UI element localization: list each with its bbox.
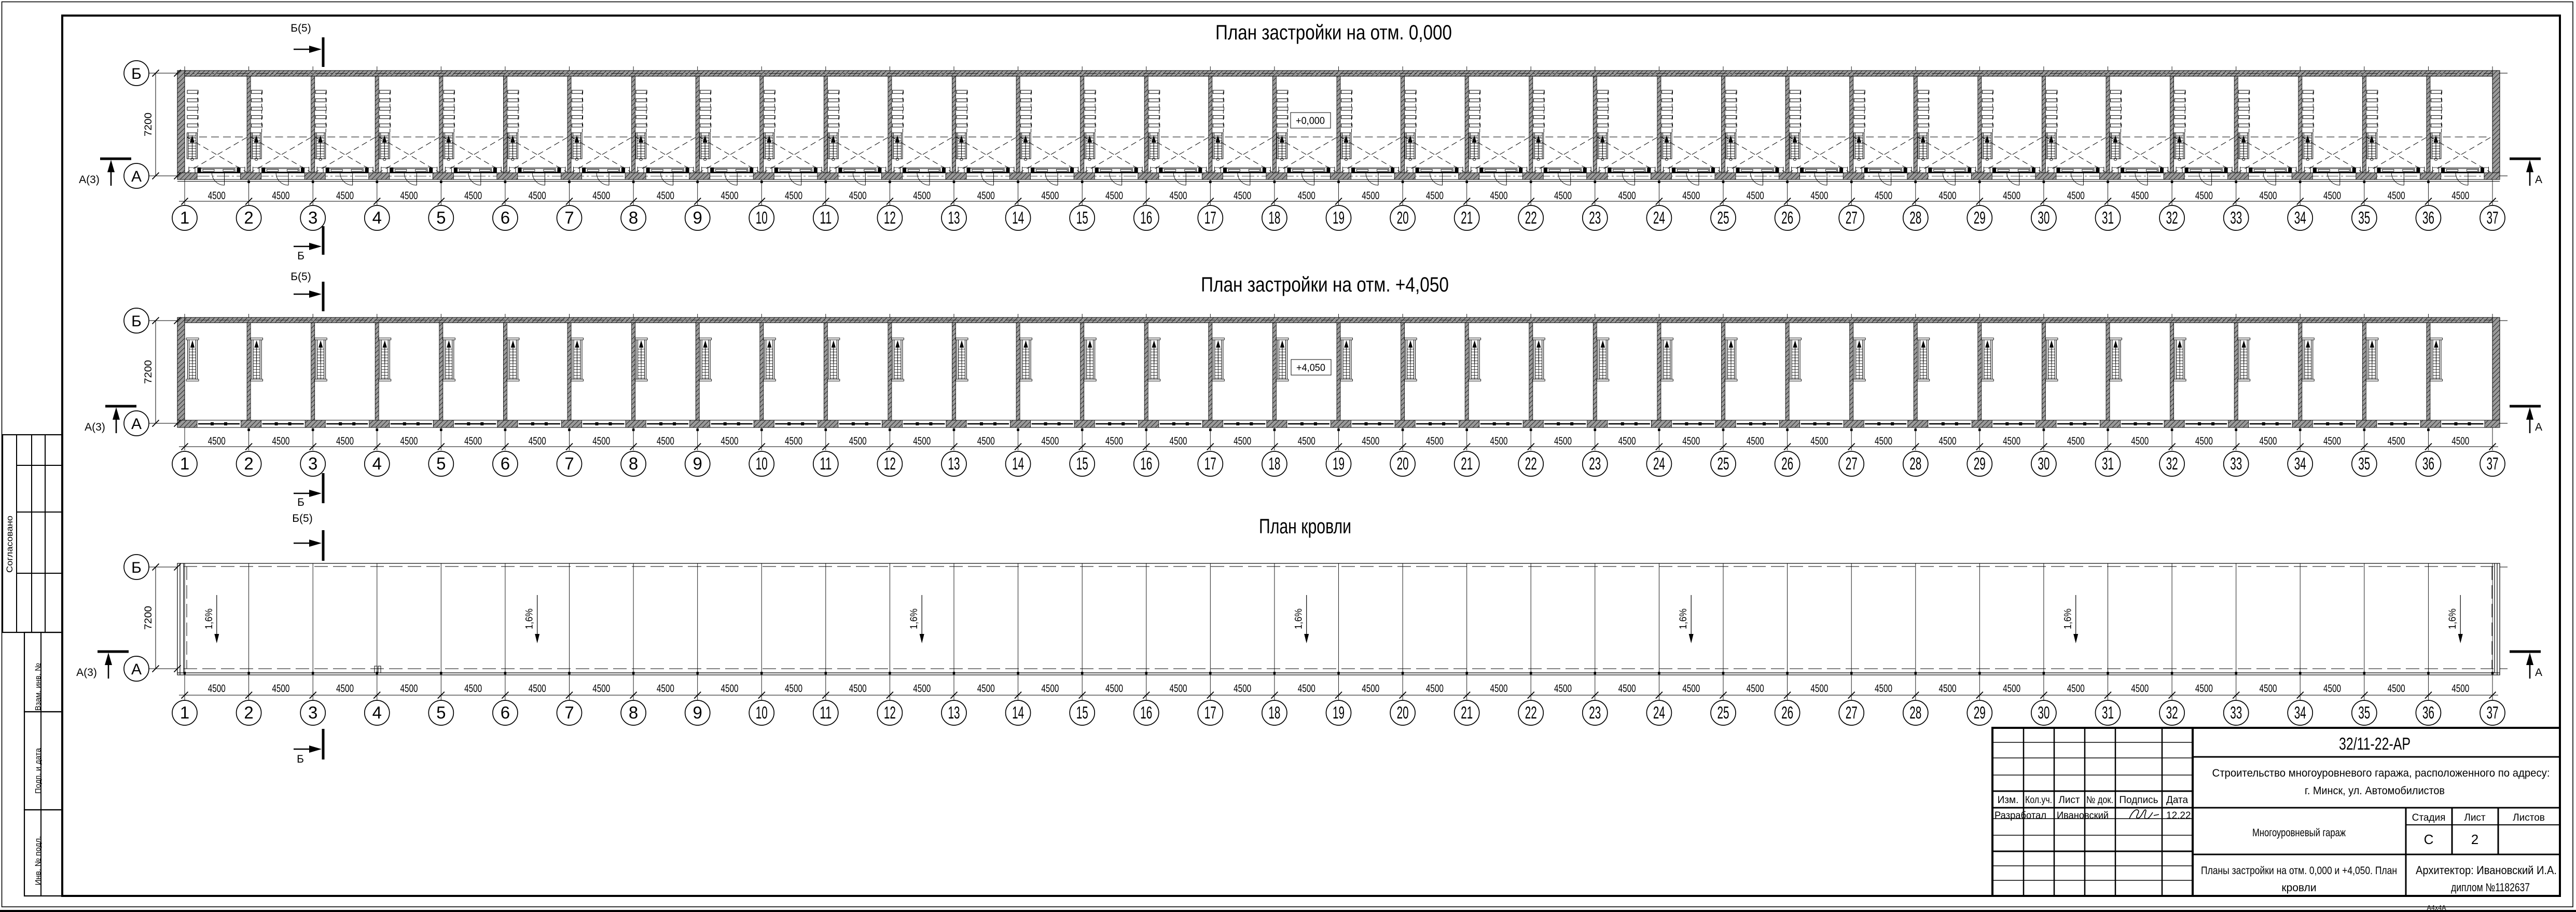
svg-text:4500: 4500 [208, 683, 226, 695]
svg-text:12: 12 [884, 703, 896, 722]
svg-text:4500: 4500 [529, 683, 546, 695]
svg-text:13: 13 [948, 208, 960, 227]
svg-text:Б: Б [131, 65, 142, 82]
svg-text:6: 6 [501, 208, 510, 227]
svg-text:9: 9 [693, 703, 702, 722]
svg-text:37: 37 [2487, 703, 2499, 722]
svg-text:г. Минск, ул. Автомобилистов: г. Минск, ул. Автомобилистов [2305, 785, 2445, 797]
svg-text:4500: 4500 [849, 435, 867, 447]
svg-text:Б(5): Б(5) [290, 271, 311, 283]
svg-text:1,6%: 1,6% [1678, 609, 1689, 629]
svg-text:7200: 7200 [143, 360, 154, 384]
svg-text:4500: 4500 [529, 190, 546, 202]
svg-text:26: 26 [1781, 703, 1793, 722]
svg-text:6: 6 [501, 454, 510, 473]
svg-text:4500: 4500 [1810, 190, 1828, 202]
svg-text:13: 13 [948, 703, 960, 722]
svg-text:23: 23 [1589, 454, 1601, 473]
svg-text:4500: 4500 [1618, 435, 1636, 447]
svg-text:Подп. и дата: Подп. и дата [34, 748, 43, 794]
svg-text:12: 12 [884, 454, 896, 473]
svg-text:4500: 4500 [1041, 683, 1059, 695]
svg-text:33: 33 [2230, 703, 2242, 722]
svg-text:4500: 4500 [2003, 435, 2020, 447]
svg-text:4500: 4500 [657, 683, 674, 695]
svg-text:4500: 4500 [1682, 683, 1700, 695]
svg-text:С: С [2424, 832, 2434, 847]
svg-text:18: 18 [1268, 208, 1280, 227]
svg-text:4500: 4500 [1041, 190, 1059, 202]
svg-text:+4,050: +4,050 [1296, 363, 1325, 374]
svg-text:Б: Б [297, 753, 304, 765]
svg-text:4500: 4500 [1554, 683, 1572, 695]
svg-text:4500: 4500 [721, 190, 739, 202]
svg-text:16: 16 [1140, 703, 1152, 722]
svg-text:4500: 4500 [849, 683, 867, 695]
svg-text:31: 31 [2102, 208, 2114, 227]
svg-text:4500: 4500 [977, 683, 995, 695]
svg-text:1,6%: 1,6% [204, 609, 215, 629]
svg-text:Дата: Дата [2166, 795, 2189, 806]
svg-text:4500: 4500 [336, 190, 354, 202]
svg-text:4500: 4500 [2388, 190, 2405, 202]
svg-text:4500: 4500 [1426, 683, 1444, 695]
svg-text:7: 7 [564, 454, 574, 473]
svg-text:Листов: Листов [2513, 812, 2545, 823]
svg-text:Б(5): Б(5) [292, 513, 312, 524]
svg-text:2: 2 [2471, 832, 2478, 847]
svg-text:12.22: 12.22 [2166, 810, 2191, 821]
svg-text:4500: 4500 [1298, 683, 1315, 695]
svg-text:Стадия: Стадия [2412, 812, 2446, 823]
svg-text:4500: 4500 [208, 435, 226, 447]
svg-text:4500: 4500 [1875, 190, 1892, 202]
svg-text:4500: 4500 [2452, 435, 2469, 447]
svg-text:25: 25 [1718, 454, 1729, 473]
svg-text:4500: 4500 [2323, 435, 2341, 447]
svg-text:Б: Б [297, 496, 304, 508]
svg-text:4500: 4500 [1170, 190, 1187, 202]
svg-text:22: 22 [1525, 208, 1537, 227]
svg-text:4500: 4500 [1105, 683, 1123, 695]
svg-text:18: 18 [1268, 454, 1280, 473]
svg-text:7200: 7200 [143, 606, 154, 630]
svg-text:4500: 4500 [913, 190, 931, 202]
svg-text:4500: 4500 [1362, 683, 1379, 695]
svg-text:4500: 4500 [592, 435, 610, 447]
svg-text:4500: 4500 [1810, 435, 1828, 447]
svg-text:27: 27 [1846, 454, 1858, 473]
svg-text:4500: 4500 [1105, 435, 1123, 447]
svg-text:28: 28 [1909, 208, 1921, 227]
svg-text:А: А [131, 168, 142, 185]
svg-text:4500: 4500 [2003, 190, 2020, 202]
svg-text:4500: 4500 [592, 683, 610, 695]
svg-text:1,6%: 1,6% [2063, 609, 2074, 629]
svg-text:11: 11 [820, 454, 832, 473]
svg-text:4500: 4500 [2003, 683, 2020, 695]
svg-text:4500: 4500 [785, 683, 802, 695]
svg-text:14: 14 [1012, 208, 1024, 227]
svg-text:А(3): А(3) [85, 421, 105, 433]
svg-text:А: А [2535, 667, 2542, 679]
svg-text:7: 7 [564, 208, 574, 227]
svg-text:4500: 4500 [1875, 683, 1892, 695]
svg-text:4500: 4500 [1554, 190, 1572, 202]
svg-text:23: 23 [1589, 208, 1601, 227]
svg-text:13: 13 [948, 454, 960, 473]
svg-text:А: А [131, 416, 142, 433]
svg-text:19: 19 [1333, 703, 1345, 722]
svg-text:План застройки на отм. 0,000: План застройки на отм. 0,000 [1215, 21, 1452, 44]
svg-text:20: 20 [1397, 208, 1409, 227]
svg-text:4: 4 [372, 703, 382, 722]
svg-text:4500: 4500 [2260, 435, 2277, 447]
svg-text:4500: 4500 [2323, 683, 2341, 695]
svg-text:4500: 4500 [1682, 190, 1700, 202]
svg-text:Строительство многоуровневого: Строительство многоуровневого гаража, ра… [2212, 767, 2550, 779]
svg-text:26: 26 [1781, 454, 1793, 473]
svg-text:+0,000: +0,000 [1296, 116, 1325, 127]
svg-text:30: 30 [2038, 703, 2049, 722]
svg-text:4500: 4500 [2067, 683, 2085, 695]
svg-text:19: 19 [1333, 454, 1345, 473]
svg-text:36: 36 [2422, 208, 2434, 227]
svg-text:4500: 4500 [1426, 435, 1444, 447]
svg-text:4500: 4500 [1170, 683, 1187, 695]
svg-text:4500: 4500 [1298, 190, 1315, 202]
svg-text:18: 18 [1268, 703, 1280, 722]
svg-text:5: 5 [436, 703, 446, 722]
svg-text:1,6%: 1,6% [524, 609, 535, 629]
svg-text:22: 22 [1525, 703, 1537, 722]
svg-text:План застройки на отм. +4,050: План застройки на отм. +4,050 [1201, 273, 1449, 296]
svg-text:4500: 4500 [2131, 190, 2149, 202]
svg-text:Кол.уч.: Кол.уч. [2025, 795, 2052, 806]
svg-text:4500: 4500 [785, 435, 802, 447]
svg-text:31: 31 [2102, 454, 2114, 473]
svg-text:4500: 4500 [1939, 190, 1957, 202]
svg-text:4500: 4500 [2195, 190, 2213, 202]
svg-text:15: 15 [1076, 208, 1088, 227]
svg-text:15: 15 [1076, 703, 1088, 722]
svg-text:31: 31 [2102, 703, 2114, 722]
svg-text:4500: 4500 [1234, 190, 1251, 202]
svg-text:4500: 4500 [2260, 190, 2277, 202]
svg-text:3: 3 [308, 454, 317, 473]
svg-text:А: А [131, 661, 142, 678]
svg-text:4500: 4500 [2388, 435, 2405, 447]
svg-text:Разработал: Разработал [1995, 810, 2046, 821]
svg-text:Взам. инв. №: Взам. инв. № [34, 663, 43, 711]
svg-text:4500: 4500 [721, 435, 739, 447]
svg-text:37: 37 [2487, 208, 2499, 227]
svg-text:Инв. № подл.: Инв. № подл. [34, 836, 43, 886]
svg-text:5: 5 [436, 454, 446, 473]
svg-text:4500: 4500 [2195, 683, 2213, 695]
svg-text:Б(5): Б(5) [290, 22, 311, 34]
svg-text:Изм.: Изм. [1998, 795, 2019, 806]
svg-text:24: 24 [1653, 454, 1665, 473]
svg-text:4500: 4500 [2067, 435, 2085, 447]
svg-text:диплом №1182637: диплом №1182637 [2451, 881, 2530, 894]
svg-text:4500: 4500 [2452, 190, 2469, 202]
svg-text:4500: 4500 [2131, 683, 2149, 695]
svg-text:3: 3 [308, 703, 317, 722]
svg-text:4500: 4500 [1875, 435, 1892, 447]
svg-text:35: 35 [2358, 454, 2370, 473]
svg-text:24: 24 [1653, 208, 1665, 227]
svg-text:19: 19 [1333, 208, 1345, 227]
svg-text:29: 29 [1974, 454, 1986, 473]
svg-text:37: 37 [2487, 454, 2499, 473]
svg-text:Лист: Лист [2464, 812, 2486, 823]
svg-text:14: 14 [1012, 703, 1024, 722]
svg-text:21: 21 [1461, 454, 1473, 473]
svg-text:9: 9 [693, 454, 702, 473]
svg-text:5: 5 [436, 208, 446, 227]
svg-text:34: 34 [2294, 208, 2306, 227]
svg-text:21: 21 [1461, 703, 1473, 722]
svg-text:1,6%: 1,6% [1294, 609, 1305, 629]
svg-text:4500: 4500 [208, 190, 226, 202]
svg-text:4500: 4500 [2452, 683, 2469, 695]
svg-text:4500: 4500 [2260, 683, 2277, 695]
svg-text:3: 3 [308, 208, 317, 227]
svg-text:11: 11 [820, 208, 832, 227]
svg-text:20: 20 [1397, 703, 1409, 722]
svg-text:4500: 4500 [1234, 435, 1251, 447]
svg-text:4500: 4500 [1490, 683, 1508, 695]
svg-text:4500: 4500 [849, 190, 867, 202]
svg-text:4500: 4500 [336, 683, 354, 695]
svg-text:17: 17 [1204, 703, 1216, 722]
svg-text:4500: 4500 [400, 190, 418, 202]
svg-text:36: 36 [2422, 454, 2434, 473]
svg-text:7200: 7200 [143, 113, 154, 136]
svg-text:4500: 4500 [1747, 435, 1764, 447]
svg-text:1,6%: 1,6% [909, 609, 920, 629]
svg-text:14: 14 [1012, 454, 1024, 473]
svg-text:4500: 4500 [464, 435, 482, 447]
svg-text:4500: 4500 [1298, 435, 1315, 447]
svg-text:11: 11 [820, 703, 832, 722]
svg-text:План кровли: План кровли [1259, 515, 1351, 538]
svg-text:24: 24 [1653, 703, 1665, 722]
svg-text:28: 28 [1909, 454, 1921, 473]
svg-text:10: 10 [756, 454, 768, 473]
svg-text:8: 8 [629, 703, 638, 722]
svg-text:26: 26 [1781, 208, 1793, 227]
svg-text:17: 17 [1204, 454, 1216, 473]
svg-text:4500: 4500 [1490, 435, 1508, 447]
svg-text:33: 33 [2230, 454, 2242, 473]
svg-text:А4х4А: А4х4А [2427, 904, 2446, 911]
svg-text:Подпись: Подпись [2119, 795, 2158, 806]
svg-text:9: 9 [693, 208, 702, 227]
svg-text:32/11-22-АР: 32/11-22-АР [2339, 734, 2411, 753]
svg-text:4500: 4500 [592, 190, 610, 202]
svg-text:22: 22 [1525, 454, 1537, 473]
svg-text:4500: 4500 [2195, 435, 2213, 447]
svg-text:4500: 4500 [464, 683, 482, 695]
svg-text:4500: 4500 [977, 190, 995, 202]
svg-text:4: 4 [372, 454, 382, 473]
svg-text:25: 25 [1718, 703, 1729, 722]
svg-text:4500: 4500 [977, 435, 995, 447]
svg-text:4500: 4500 [1618, 190, 1636, 202]
svg-text:35: 35 [2358, 703, 2370, 722]
svg-text:Ивановский: Ивановский [2057, 810, 2109, 821]
svg-text:4500: 4500 [529, 435, 546, 447]
svg-text:4: 4 [372, 208, 382, 227]
svg-text:15: 15 [1076, 454, 1088, 473]
svg-text:32: 32 [2166, 208, 2178, 227]
svg-text:4500: 4500 [721, 683, 739, 695]
svg-text:10: 10 [756, 703, 768, 722]
svg-text:1: 1 [180, 454, 189, 473]
svg-text:Б: Б [131, 559, 142, 576]
svg-text:Планы застройки на отм. 0,000: Планы застройки на отм. 0,000 и +4,050. … [2201, 865, 2397, 877]
svg-text:32: 32 [2166, 703, 2178, 722]
svg-text:4500: 4500 [1747, 683, 1764, 695]
svg-text:8: 8 [629, 454, 638, 473]
svg-text:17: 17 [1204, 208, 1216, 227]
svg-text:Лист: Лист [2058, 795, 2080, 806]
svg-text:29: 29 [1974, 703, 1986, 722]
svg-text:10: 10 [756, 208, 768, 227]
svg-text:29: 29 [1974, 208, 1986, 227]
svg-text:4500: 4500 [1554, 435, 1572, 447]
svg-text:4500: 4500 [336, 435, 354, 447]
svg-text:30: 30 [2038, 454, 2049, 473]
svg-text:33: 33 [2230, 208, 2242, 227]
svg-text:25: 25 [1718, 208, 1729, 227]
svg-text:4500: 4500 [1618, 683, 1636, 695]
svg-text:4500: 4500 [272, 683, 289, 695]
svg-text:2: 2 [244, 703, 253, 722]
svg-text:4500: 4500 [1939, 683, 1957, 695]
svg-text:6: 6 [501, 703, 510, 722]
svg-text:4500: 4500 [2323, 190, 2341, 202]
svg-text:А: А [2535, 174, 2542, 186]
svg-text:4500: 4500 [400, 683, 418, 695]
svg-text:8: 8 [629, 208, 638, 227]
svg-text:12: 12 [884, 208, 896, 227]
svg-text:4500: 4500 [1105, 190, 1123, 202]
svg-text:4500: 4500 [1490, 190, 1508, 202]
svg-text:4500: 4500 [272, 190, 289, 202]
svg-text:А: А [2535, 421, 2542, 433]
svg-text:27: 27 [1846, 208, 1858, 227]
svg-text:16: 16 [1140, 208, 1152, 227]
svg-text:2: 2 [244, 208, 253, 227]
svg-text:4500: 4500 [2131, 435, 2149, 447]
svg-text:4500: 4500 [657, 190, 674, 202]
svg-text:4500: 4500 [272, 435, 289, 447]
svg-text:Многоуровневый гараж: Многоуровневый гараж [2252, 827, 2346, 839]
svg-text:1: 1 [180, 208, 189, 227]
svg-text:1: 1 [180, 703, 189, 722]
svg-text:4500: 4500 [913, 435, 931, 447]
svg-text:30: 30 [2038, 208, 2049, 227]
svg-text:А(3): А(3) [76, 667, 97, 679]
svg-text:Согласовано: Согласовано [5, 516, 15, 573]
svg-text:36: 36 [2422, 703, 2434, 722]
svg-text:Б: Б [131, 313, 142, 330]
svg-text:4500: 4500 [1362, 190, 1379, 202]
svg-text:4500: 4500 [400, 435, 418, 447]
svg-text:4500: 4500 [1426, 190, 1444, 202]
svg-text:4500: 4500 [1939, 435, 1957, 447]
svg-text:34: 34 [2294, 703, 2306, 722]
svg-text:7: 7 [564, 703, 574, 722]
svg-text:4500: 4500 [1747, 190, 1764, 202]
svg-text:№ док.: № док. [2086, 795, 2113, 806]
svg-text:34: 34 [2294, 454, 2306, 473]
svg-text:4500: 4500 [1362, 435, 1379, 447]
svg-text:4500: 4500 [913, 683, 931, 695]
svg-text:4500: 4500 [1810, 683, 1828, 695]
svg-text:4500: 4500 [1041, 435, 1059, 447]
svg-text:27: 27 [1846, 703, 1858, 722]
svg-text:4500: 4500 [1234, 683, 1251, 695]
svg-text:А(3): А(3) [79, 174, 100, 186]
svg-text:21: 21 [1461, 208, 1473, 227]
svg-text:4500: 4500 [2388, 683, 2405, 695]
svg-text:4500: 4500 [464, 190, 482, 202]
svg-text:20: 20 [1397, 454, 1409, 473]
svg-text:35: 35 [2358, 208, 2370, 227]
svg-text:4500: 4500 [1682, 435, 1700, 447]
svg-text:2: 2 [244, 454, 253, 473]
svg-text:Б: Б [297, 250, 304, 262]
svg-text:28: 28 [1909, 703, 1921, 722]
svg-text:32: 32 [2166, 454, 2178, 473]
svg-text:4500: 4500 [2067, 190, 2085, 202]
svg-text:кровли: кровли [2281, 882, 2316, 894]
svg-text:23: 23 [1589, 703, 1601, 722]
svg-text:Архитектор: Ивановский И.А.: Архитектор: Ивановский И.А. [2416, 864, 2557, 877]
svg-text:1,6%: 1,6% [2447, 609, 2458, 629]
svg-text:16: 16 [1140, 454, 1152, 473]
svg-text:4500: 4500 [785, 190, 802, 202]
svg-text:4500: 4500 [1170, 435, 1187, 447]
svg-text:4500: 4500 [657, 435, 674, 447]
